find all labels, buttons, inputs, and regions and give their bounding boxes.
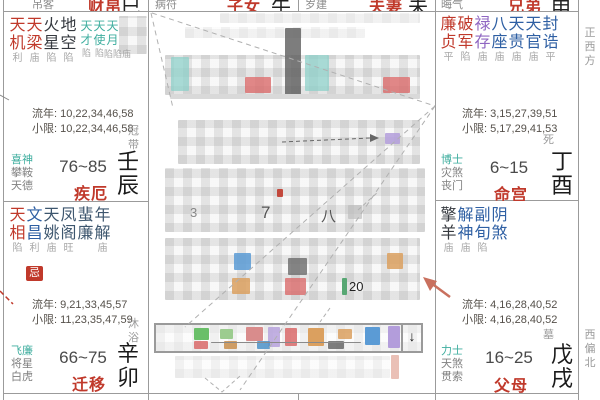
fragment-branch: 午 — [271, 0, 291, 11]
redacted-block — [246, 327, 263, 341]
redacted-block — [385, 133, 400, 144]
redacted-block — [288, 258, 307, 275]
redacted-glyph: 3 — [190, 205, 197, 220]
xiaoxian-text: 小限: 10,22,34,46,58 — [32, 123, 134, 136]
palace-name: 迁移 — [72, 371, 106, 395]
redacted-block — [234, 253, 251, 270]
fragment-palace-name: 夫妻 — [369, 0, 403, 11]
direction-label-west: 正西方 — [584, 26, 596, 68]
star-qingyang: 擎羊庙 — [440, 207, 457, 255]
fragment-branch: 未 — [408, 0, 428, 11]
star-pojun: 破军陷 — [457, 16, 474, 64]
decade-timeline-redacted[interactable]: ↓ — [154, 323, 423, 353]
redacted-block — [285, 28, 301, 95]
palace-cell-you-ming[interactable]: 廉贞平 破军陷 禄存庙 八座庙 天贵庙 天官庙 封诰平 流年: 3,15,27,… — [436, 12, 578, 200]
age-range: 6~15 — [478, 158, 540, 178]
redacted-block — [245, 77, 271, 93]
minor-brightness: 陷陷庙 — [104, 48, 131, 61]
star-nianjie: 年解庙 — [94, 207, 111, 255]
redacted-block — [220, 329, 233, 339]
redacted-block — [175, 356, 390, 378]
star-tianxiang: 天相陷 — [9, 207, 26, 255]
redacted-block — [277, 189, 283, 197]
age-range: 16~25 — [478, 348, 540, 368]
age-range: 76~85 — [52, 157, 114, 177]
ganzhi-label: 辛卯 — [116, 342, 140, 390]
liunian-text: 流年: 9,21,33,45,57 — [32, 299, 127, 312]
star-row: 天相陷 文昌利 天姚庙 凤阁旺 蜚廉 年解庙 — [9, 207, 111, 255]
star-fengge: 凤阁旺 — [60, 207, 77, 255]
redacted-glyph: 7 — [261, 203, 270, 223]
liunian-text: 流年: 10,22,34,46,58 — [32, 108, 134, 121]
star-lucun: 禄存庙 — [474, 16, 491, 64]
redacted-block — [388, 326, 400, 348]
star-dikong: 地空陷 — [60, 17, 77, 65]
star-tianji: 天机利 — [9, 17, 26, 65]
age-marker-bar — [342, 278, 347, 295]
palace-name: 父母 — [494, 372, 528, 396]
redacted-block — [185, 27, 365, 38]
star-row: 廉贞平 破军陷 禄存庙 八座庙 天贵庙 天官庙 封诰平 — [440, 16, 559, 64]
star-row: 擎羊庙 解神庙 副旬陷 阴煞 — [440, 207, 508, 255]
current-age-marker: 20 — [349, 279, 363, 294]
palace-fragment-si[interactable]: 吊客 财帛 巳 — [4, 0, 147, 11]
redacted-block — [308, 328, 324, 346]
palace-name: 疾厄 — [74, 180, 108, 204]
redacted-block — [387, 253, 403, 269]
xiaoxian-text: 小限: 11,23,35,47,59 — [32, 314, 133, 327]
fragment-palace-name: 兄弟 — [508, 0, 542, 11]
hua-ji-badge: 忌 — [26, 266, 43, 281]
ziwei-chart: 正西方 西偏北 吊客 财帛 巳 病符 子女 午 岁建 夫妻 未 晦气 兄弟 申 … — [0, 0, 600, 400]
redacted-glyph: 八 — [321, 205, 336, 226]
star-tiancai: 天才陷 — [80, 19, 93, 59]
shensha-list: 博士 灾煞 丧门 — [441, 154, 463, 193]
redacted-block — [348, 205, 362, 219]
palace-fragment-wei[interactable]: 岁建 夫妻 未 — [299, 0, 434, 11]
redacted-block — [365, 327, 380, 345]
star-bazuo: 八座庙 — [491, 16, 508, 64]
shensha-list: 力士 天煞 贯索 — [441, 345, 463, 384]
redacted-block — [305, 55, 329, 91]
fragment-shensha: 晦气 — [441, 0, 463, 11]
redacted-block — [194, 328, 209, 340]
redacted-block — [194, 341, 208, 349]
timeline-axis — [211, 342, 361, 343]
palace-cell-mao-qianyi[interactable]: 天相陷 文昌利 天姚庙 凤阁旺 蜚廉 年解庙 忌 流年: 9,21,33,45,… — [4, 202, 148, 393]
ganzhi-label: 戊戌 — [550, 343, 574, 391]
star-wenchang: 文昌利 — [26, 207, 43, 255]
star-tiangui: 天贵庙 — [508, 16, 525, 64]
star-jieshen: 解神庙 — [457, 207, 474, 255]
fragment-shensha: 病符 — [155, 0, 177, 11]
changsheng-stage: 墓 — [542, 328, 555, 342]
palace-fragment-wu[interactable]: 病符 子女 午 — [149, 0, 297, 11]
shensha-list: 飞廉 将星 白虎 — [11, 345, 33, 384]
grid-line — [578, 0, 579, 400]
palace-cell-xu-fumu[interactable]: 擎羊庙 解神庙 副旬陷 阴煞 流年: 4,16,28,40,52 小限: 4,1… — [436, 201, 578, 393]
star-yinsha: 阴煞 — [491, 207, 508, 255]
fragment-shensha: 岁建 — [305, 0, 327, 11]
redacted-block — [178, 120, 420, 164]
age-range: 66~75 — [52, 348, 114, 368]
fragment-palace-name: 子女 — [227, 0, 261, 11]
redacted-block — [391, 355, 399, 379]
changsheng-stage: 冠带 — [127, 124, 140, 152]
xiaoxian-text: 小限: 4,16,28,40,52 — [462, 314, 557, 327]
changsheng-stage: 死 — [542, 133, 555, 147]
redacted-block — [285, 328, 297, 346]
star-huoxing: 火星陷 — [43, 17, 60, 65]
palace-fragment-shen[interactable]: 晦气 兄弟 申 — [436, 0, 577, 11]
redacted-block — [220, 13, 420, 23]
center-panel-redacted: 3 7 八 20 ↓ — [148, 11, 435, 393]
shensha-list: 喜神 攀鞍 天德 — [11, 154, 33, 193]
star-lianzhen: 廉贞平 — [440, 16, 457, 64]
direction-label-west-north: 西偏北 — [584, 328, 596, 370]
star-fuxun: 副旬陷 — [474, 207, 491, 255]
star-fenggao: 封诰平 — [542, 16, 559, 64]
redacted-block — [170, 94, 420, 99]
ganzhi-label: 壬辰 — [116, 150, 140, 198]
liunian-text: 流年: 3,15,27,39,51 — [462, 108, 557, 121]
redacted-block — [383, 77, 410, 93]
grid-line — [298, 393, 299, 400]
fragment-branch: 申 — [551, 0, 571, 11]
redacted-block — [232, 278, 250, 294]
redacted-block — [171, 57, 189, 91]
down-arrow-icon[interactable]: ↓ — [401, 325, 421, 351]
ganzhi-label: 丁酉 — [550, 150, 574, 198]
redacted-block — [165, 168, 425, 232]
star-row: 天机利 天梁庙 火星陷 地空陷 — [9, 17, 77, 65]
fragment-shensha: 吊客 — [32, 0, 54, 11]
liunian-text: 流年: 4,16,28,40,52 — [462, 299, 557, 312]
fragment-branch: 巳 — [121, 0, 141, 11]
star-tianyao: 天姚庙 — [43, 207, 60, 255]
palace-cell-chen-jie[interactable]: 天机利 天梁庙 火星陷 地空陷 天才陷 天使陷 天月 陷陷庙 流年: 10,22… — [4, 12, 148, 201]
fragment-palace-name: 财帛 — [88, 0, 122, 11]
redacted-block — [285, 278, 306, 295]
star-feilian-star: 蜚廉 — [77, 207, 94, 255]
redacted-block — [338, 329, 352, 339]
star-tianguan: 天官庙 — [525, 16, 542, 64]
star-tianliang: 天梁庙 — [26, 17, 43, 65]
